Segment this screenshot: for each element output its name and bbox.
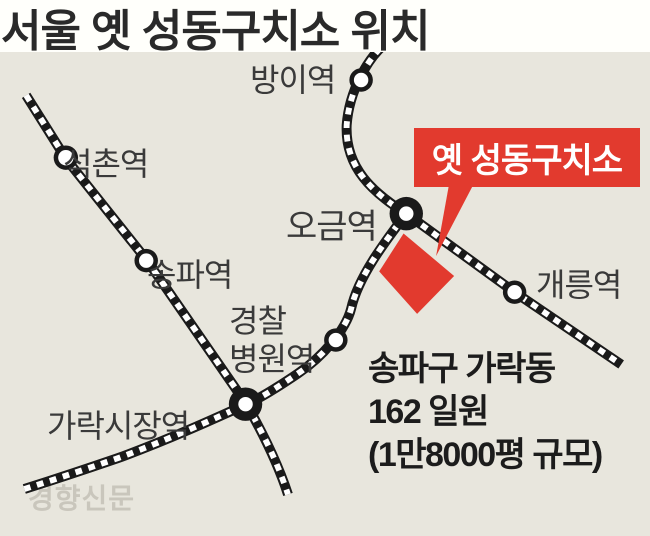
station-label-police-hospital: 경찰 병원역 [229,302,314,378]
site-address-line1: 송파구 가락동 [368,348,602,391]
station-label-police-hospital-line1: 경찰 [229,302,314,340]
station-marker-garak-market-transfer [229,387,262,420]
site-address-note: 송파구 가락동 162 일원 (1만8000평 규모) [368,348,602,477]
station-label-ogeum: 오금역 [286,210,377,246]
callout-box-former-detention-center: 옛 성동구치소 [414,128,640,187]
station-label-police-hospital-line2: 병원역 [229,340,314,378]
infographic-map: 서울 옛 성동구치소 위치 경향신문 [0,0,650,536]
station-label-seokchon: 석촌역 [63,148,148,182]
station-label-songpa: 송파역 [147,259,232,293]
station-label-gaereung: 개릉역 [536,269,621,303]
site-address-line2: 162 일원 [368,391,602,434]
station-marker-police-hospital [324,328,347,351]
station-marker-bangi [349,68,372,91]
map-area: 경향신문 [0,52,650,536]
site-address-line3: (1만8000평 규모) [368,434,602,477]
rail-line-bangi-ogeum-gaereung [347,52,622,364]
station-marker-ogeum-transfer [390,197,423,230]
callout-label: 옛 성동구치소 [432,133,622,182]
station-label-garak-market: 가락시장역 [47,410,189,444]
station-marker-gaereung [503,280,526,303]
station-label-bangi: 방이역 [250,64,335,98]
page-title: 서울 옛 성동구치소 위치 [1,0,429,59]
